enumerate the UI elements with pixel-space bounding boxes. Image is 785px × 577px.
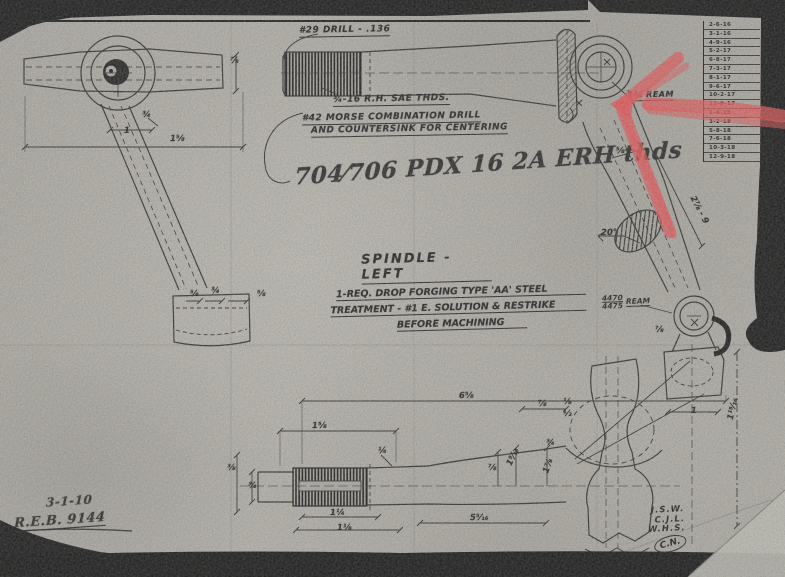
red-annotation-arrow: [0, 0, 785, 577]
scanned-blueprint-sheet: #29 DRILL - .136 ¾-16 R.H. SAE THDS. #42…: [0, 0, 785, 577]
